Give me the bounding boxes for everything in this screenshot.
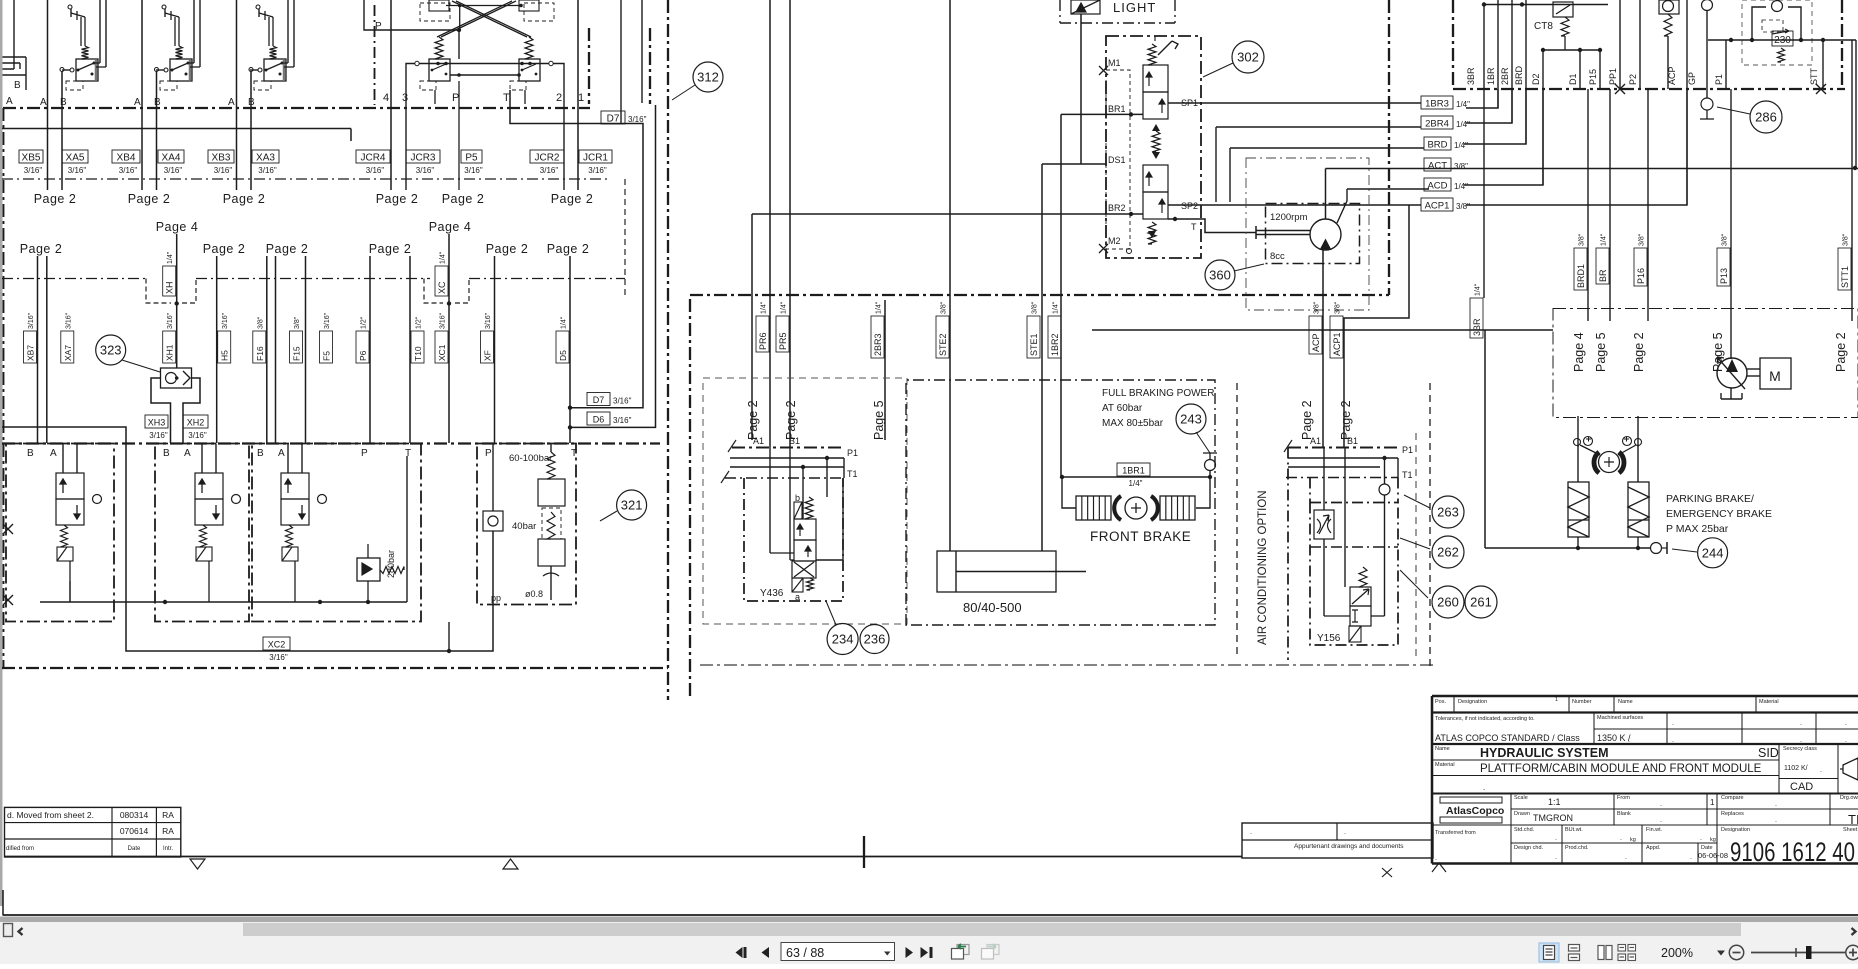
svg-text:Drg.owner.: Drg.owner. [1840,795,1858,801]
svg-text:Page 2: Page 2 [1300,400,1314,440]
svg-text:Page 2: Page 2 [1632,332,1646,372]
svg-text:080314: 080314 [120,810,149,820]
svg-text:1/4": 1/4" [876,301,883,314]
svg-text:Page 2: Page 2 [376,192,419,206]
svg-text:BUt.wt.: BUt.wt. [1565,827,1583,833]
svg-text:3/16": 3/16" [540,166,559,175]
svg-text:Tolerances, if not indicated,: Tolerances, if not indicated, according … [1435,716,1535,722]
svg-text:XF: XF [483,350,493,361]
svg-text:B: B [27,448,34,459]
svg-text:.: . [1344,829,1346,836]
svg-text:ATLAS COPCO STANDARD / Class: ATLAS COPCO STANDARD / Class [1435,733,1580,743]
svg-text:ACP1: ACP1 [1425,201,1450,212]
svg-text:3BR: 3BR [1466,67,1476,85]
svg-text:T1: T1 [1402,470,1413,480]
svg-text:1: 1 [1555,697,1558,703]
svg-text:D1: D1 [1568,73,1578,85]
svg-text:XH2: XH2 [187,418,205,428]
svg-text:Name: Name [1618,699,1633,705]
svg-text:P6: P6 [358,350,368,361]
svg-text:Material: Material [1759,699,1779,705]
svg-text:.: . [1845,737,1847,744]
svg-text:8cc: 8cc [1270,251,1285,262]
svg-text:P1: P1 [1714,74,1724,85]
svg-text:.: . [1620,835,1622,842]
svg-text:ACP1: ACP1 [1332,332,1342,356]
svg-text:262: 262 [1437,545,1459,560]
svg-text:1/4": 1/4" [561,316,568,329]
svg-text:ACT: ACT [1428,161,1447,172]
svg-text:B1: B1 [1347,436,1358,446]
svg-text:3/16": 3/16" [324,312,331,329]
svg-text:Secrecy class: Secrecy class [1783,746,1817,752]
svg-text:F16: F16 [255,346,265,361]
svg-text:3/8": 3/8" [1335,301,1342,314]
svg-text:1BR1: 1BR1 [1122,466,1145,476]
svg-text:Fin.wt.: Fin.wt. [1646,827,1663,833]
svg-text:A: A [134,97,141,108]
svg-text:Page 2: Page 2 [746,400,760,440]
svg-text:3/16": 3/16" [214,166,233,175]
svg-text:2BR3: 2BR3 [873,333,883,356]
svg-text:280bar: 280bar [386,550,396,578]
svg-text:360: 360 [1209,268,1231,283]
svg-text:40bar: 40bar [512,521,536,532]
svg-text:Page 5: Page 5 [1594,332,1608,372]
svg-text:Std.chd.: Std.chd. [1514,827,1535,833]
svg-text:3/16": 3/16" [222,312,229,329]
svg-text:Designation: Designation [1458,699,1487,705]
svg-text:3/16": 3/16" [65,312,72,329]
svg-text:CAD: CAD [1790,781,1813,793]
svg-text:XH: XH [165,281,175,294]
svg-text:1/4": 1/4" [1129,479,1143,488]
svg-text:263: 263 [1437,505,1459,520]
svg-text:60-100bar: 60-100bar [509,453,552,464]
svg-text:STT: STT [1809,67,1819,85]
svg-text:.: . [1435,855,1437,862]
svg-text:XB3: XB3 [212,153,231,164]
svg-text:Machined surfaces: Machined surfaces [1597,715,1643,721]
svg-text:BRD1: BRD1 [1576,264,1586,288]
svg-text:P15: P15 [1588,69,1598,85]
svg-text:1: 1 [1710,798,1715,807]
svg-text:Sheet: Sheet [1843,827,1858,833]
svg-text:P5: P5 [465,153,478,164]
svg-text:321: 321 [621,498,643,513]
svg-text:A1: A1 [1310,436,1321,446]
svg-text:302: 302 [1237,50,1259,65]
svg-text:PLATTFORM/CABIN MODULE AND FRO: PLATTFORM/CABIN MODULE AND FRONT MODULE [1480,763,1762,775]
svg-text:XB4: XB4 [117,153,136,164]
svg-text:A: A [6,96,13,107]
svg-text:FRONT BRAKE: FRONT BRAKE [1090,529,1191,544]
svg-text:Scale: Scale [1514,795,1528,801]
svg-text:A: A [184,448,191,459]
svg-text:P13: P13 [1719,268,1729,284]
svg-text:3/16": 3/16" [269,653,288,662]
svg-text:.: . [1555,854,1557,861]
svg-text:Transferred from: Transferred from [1435,830,1476,836]
svg-text:1/4": 1/4" [1053,301,1060,314]
svg-text:1/4": 1/4" [1454,141,1468,150]
svg-text:P: P [485,448,492,459]
svg-text:1: 1 [578,92,584,104]
svg-text:d. Moved from sheet 2.: d. Moved from sheet 2. [7,810,94,820]
svg-text:.: . [1800,720,1802,727]
svg-text:B: B [60,97,67,108]
svg-text:Number: Number [1572,699,1592,705]
svg-text:3/8": 3/8" [1579,233,1586,246]
svg-text:M1: M1 [1108,58,1121,68]
svg-text:ACD: ACD [1427,181,1447,192]
svg-text:1/4": 1/4" [781,301,788,314]
svg-text:1/4": 1/4" [1601,233,1608,246]
svg-text:B: B [154,97,161,108]
svg-text:1/2": 1/2" [416,316,423,329]
svg-text:1200rpm: 1200rpm [1270,212,1308,223]
svg-text:Y156: Y156 [1317,633,1341,644]
svg-text:3/8": 3/8" [941,301,948,314]
svg-text:Appd.: Appd. [1646,845,1661,851]
svg-text:.: . [1672,720,1674,727]
svg-text:Page 5: Page 5 [872,400,886,440]
svg-text:T1: T1 [847,469,858,479]
svg-text:A1: A1 [753,436,764,446]
svg-text:D2: D2 [1531,73,1541,85]
svg-text:3/16": 3/16" [188,431,207,440]
svg-text:RA: RA [162,826,174,836]
svg-text:3/16": 3/16" [28,312,35,329]
svg-text:3/16": 3/16" [464,166,483,175]
svg-text:63 / 88: 63 / 88 [786,946,824,960]
svg-text:M2: M2 [1108,236,1121,246]
svg-text:XA7: XA7 [63,345,73,361]
svg-text:PR6: PR6 [758,332,768,350]
svg-text:.: . [1555,835,1557,842]
svg-text:3/16": 3/16" [119,166,138,175]
svg-text:.: . [1775,801,1777,808]
svg-text:B: B [163,448,170,459]
svg-text:XB7: XB7 [26,345,36,361]
svg-text:1BR3: 1BR3 [1425,99,1449,110]
svg-text:Y436: Y436 [760,588,784,599]
svg-text:JCR3: JCR3 [410,153,435,164]
svg-text:1/2": 1/2" [361,316,368,329]
svg-text:Date: Date [128,846,141,852]
svg-text:3/16": 3/16" [258,166,277,175]
svg-text:286: 286 [1755,110,1777,125]
svg-text:P2: P2 [1628,74,1638,85]
svg-text:Drawn: Drawn [1514,811,1530,817]
svg-text:1/4": 1/4" [167,251,174,264]
svg-text:BRD: BRD [1427,140,1447,151]
svg-text:3/8": 3/8" [1843,233,1850,246]
svg-text:XH1: XH1 [165,344,175,361]
svg-text:XB5: XB5 [22,153,41,164]
svg-text:243: 243 [1180,412,1202,427]
svg-text:.: . [1800,737,1802,744]
svg-text:AtlasCopco: AtlasCopco [1446,805,1504,817]
svg-text:261: 261 [1470,595,1492,610]
svg-text:3/8": 3/8" [1722,233,1729,246]
svg-text:Prod.chd.: Prod.chd. [1565,845,1589,851]
svg-text:SID: SID [1758,746,1779,760]
svg-text:3/16": 3/16" [366,166,385,175]
svg-text:2BR: 2BR [1500,67,1510,85]
svg-text:P MAX 25bar: P MAX 25bar [1666,523,1729,535]
svg-text:XA3: XA3 [256,153,275,164]
svg-text:T: T [1191,222,1197,232]
svg-text:BRD: BRD [1514,65,1524,85]
svg-text:Page 4: Page 4 [1572,332,1586,372]
svg-text:XA4: XA4 [162,153,181,164]
svg-text:HYDRAULIC SYSTEM: HYDRAULIC SYSTEM [1480,746,1608,760]
svg-text:Page 2: Page 2 [442,192,485,206]
svg-text:A: A [278,448,285,459]
svg-text:1BR: 1BR [1486,67,1496,85]
svg-text:F15: F15 [292,346,302,361]
svg-text:Page 2: Page 2 [784,400,798,440]
svg-text:STE1: STE1 [1029,333,1039,356]
svg-text:ø0.8: ø0.8 [525,589,543,599]
svg-text:80/40-500: 80/40-500 [963,600,1022,615]
svg-text:TMGRON: TMGRON [1533,813,1573,823]
svg-text:Page 2: Page 2 [266,242,309,256]
svg-text:MAX 80±5bar: MAX 80±5bar [1102,418,1164,429]
svg-text:1102 K/: 1102 K/ [1784,765,1808,772]
svg-text:.: . [1625,854,1627,861]
svg-text:M: M [1769,368,1781,384]
svg-text:PARKING BRAKE/: PARKING BRAKE/ [1666,493,1754,505]
svg-text:A: A [50,448,57,459]
svg-text:Page 2: Page 2 [128,192,171,206]
svg-text:3/16": 3/16" [613,416,632,425]
svg-text:RA: RA [162,810,174,820]
svg-text:Design chd.: Design chd. [1514,845,1544,851]
svg-text:3/8": 3/8" [1454,162,1468,171]
svg-text:06-06-08: 06-06-08 [1698,851,1728,860]
svg-text:3/16": 3/16" [440,312,447,329]
svg-text:.: . [1250,829,1252,836]
svg-text:D6: D6 [593,415,605,425]
svg-text:LIGHT: LIGHT [1113,0,1156,15]
svg-text:PR5: PR5 [778,332,788,350]
svg-text:3/16": 3/16" [613,397,632,406]
svg-text:P: P [361,448,368,459]
svg-text:a: a [795,592,800,602]
svg-text:dified from: dified from [6,846,34,852]
svg-text:1BR2: 1BR2 [1050,333,1060,356]
svg-text:Designation: Designation [1721,827,1750,833]
svg-text:A: A [228,97,235,108]
svg-text:kg: kg [1630,837,1636,843]
svg-text:Page 2: Page 2 [486,242,529,256]
svg-text:D5: D5 [558,350,568,361]
svg-text:PP1: PP1 [1608,68,1618,85]
svg-text:Blank: Blank [1617,811,1631,817]
svg-text:JCR2: JCR2 [534,153,559,164]
svg-text:FULL BRAKING POWER: FULL BRAKING POWER [1102,388,1214,399]
svg-text:P1: P1 [1402,445,1413,455]
svg-text:BR: BR [1598,269,1608,282]
svg-text:P: P [452,92,459,104]
svg-text:XA5: XA5 [66,153,85,164]
svg-text:3/8": 3/8" [1456,202,1470,211]
svg-text:Replaces: Replaces [1721,811,1744,817]
svg-text:.: . [1483,783,1485,792]
svg-text:3/16": 3/16" [24,166,43,175]
svg-text:1/4": 1/4" [1454,182,1468,191]
svg-text:Page 2: Page 2 [223,192,266,206]
svg-text:244: 244 [1702,545,1724,560]
svg-text:070614: 070614 [120,826,149,836]
svg-text:260: 260 [1437,595,1459,610]
svg-text:2BR4: 2BR4 [1425,119,1449,130]
svg-text:Page 2: Page 2 [369,242,412,256]
svg-text:XC2: XC2 [268,640,286,650]
svg-text:XC: XC [437,281,447,294]
svg-text:B1: B1 [789,436,800,446]
svg-text:.: . [1845,720,1847,727]
svg-text:Page 2: Page 2 [203,242,246,256]
svg-text:Appurtenant drawings and docum: Appurtenant drawings and documents [1294,843,1404,850]
svg-text:Material: Material [1435,762,1455,768]
svg-text:T: T [503,92,510,104]
svg-text:B: B [257,448,264,459]
svg-text:H5: H5 [220,350,230,361]
svg-text:3/8": 3/8" [294,316,301,329]
svg-text:.: . [1820,767,1822,774]
svg-text:D7: D7 [593,395,605,405]
svg-text:Page 2: Page 2 [1339,400,1353,440]
svg-text:Page 2: Page 2 [20,242,63,256]
svg-text:Page 2: Page 2 [547,242,590,256]
svg-text:F5: F5 [322,351,332,361]
svg-text:Pos.: Pos. [1435,699,1446,705]
svg-text:.: . [1775,817,1777,824]
svg-text:D7: D7 [607,114,620,125]
svg-text:3/16": 3/16" [485,312,492,329]
svg-text:kg: kg [1710,837,1716,843]
svg-text:.: . [1628,737,1630,744]
svg-text:DS1: DS1 [1108,155,1126,165]
svg-text:BR1: BR1 [1108,104,1126,114]
svg-text:JCR4: JCR4 [360,153,385,164]
svg-text:A: A [40,97,47,108]
svg-text:P16: P16 [1636,268,1646,284]
svg-text:ACP: ACP [1311,333,1321,352]
svg-text:323: 323 [100,343,122,358]
svg-text:3: 3 [402,92,408,104]
svg-text:3/8": 3/8" [1314,301,1321,314]
svg-text:3/16": 3/16" [588,166,607,175]
svg-text:EMERGENCY BRAKE: EMERGENCY BRAKE [1666,508,1772,520]
svg-text:STE2: STE2 [938,333,948,356]
svg-text:1/4": 1/4" [1475,283,1482,296]
svg-text:3/16": 3/16" [628,115,647,124]
svg-text:200%: 200% [1661,946,1693,960]
svg-text:3/8": 3/8" [1639,233,1646,246]
svg-text:Page 4: Page 4 [156,220,199,234]
svg-text:T: T [405,448,411,459]
svg-text:.: . [1700,835,1702,842]
svg-text:1:1: 1:1 [1548,797,1561,807]
svg-text:P: P [375,21,382,32]
svg-text:From: From [1617,795,1630,801]
svg-text:B: B [14,80,21,91]
svg-text:1/4": 1/4" [440,251,447,264]
svg-text:236: 236 [864,632,886,647]
svg-text:234: 234 [832,632,854,647]
svg-text:SP2: SP2 [1181,201,1198,211]
svg-text:Name: Name [1435,746,1450,752]
svg-text:XH3: XH3 [148,418,166,428]
svg-text:Page 2: Page 2 [551,192,594,206]
svg-text:1350 K /: 1350 K / [1597,733,1631,743]
svg-text:.: . [1690,854,1692,861]
svg-text:3/16": 3/16" [416,166,435,175]
svg-text:.: . [1660,817,1662,824]
svg-text:P1: P1 [847,448,858,458]
svg-text:.: . [1672,737,1674,744]
svg-text:AIR CONDITIONING OPTION: AIR CONDITIONING OPTION [1257,490,1269,645]
svg-text:3/16": 3/16" [68,166,87,175]
svg-text:3/16": 3/16" [167,312,174,329]
svg-text:GP: GP [1687,72,1697,85]
svg-text:.: . [1660,801,1662,808]
svg-text:3/16": 3/16" [149,431,168,440]
svg-text:312: 312 [697,70,719,85]
svg-text:b: b [795,493,800,503]
svg-text:Page 4: Page 4 [429,220,472,234]
svg-text:AT 60bar: AT 60bar [1102,403,1143,414]
svg-text:4: 4 [383,92,389,104]
svg-text:3/16": 3/16" [164,166,183,175]
svg-text:BR2: BR2 [1108,203,1126,213]
svg-text:3BR: 3BR [1472,318,1482,336]
svg-text:STT1: STT1 [1840,266,1850,288]
svg-text:9106 1612 40: 9106 1612 40 [1730,837,1855,867]
svg-text:1/4": 1/4" [1456,120,1470,129]
svg-text:1/4": 1/4" [761,301,768,314]
svg-text:XC1: XC1 [437,344,447,361]
svg-text:Intr.: Intr. [163,846,173,852]
svg-text:pp: pp [491,593,501,603]
svg-text:Compare: Compare [1721,795,1744,801]
svg-text:Page 2: Page 2 [34,192,77,206]
svg-text:Page 2: Page 2 [1834,332,1848,372]
svg-text:T10: T10 [413,346,423,361]
svg-text:3/8": 3/8" [1032,301,1039,314]
svg-text:3/8": 3/8" [257,316,264,329]
svg-text:JCR1: JCR1 [583,153,608,164]
svg-text:2: 2 [556,92,562,104]
svg-text:CT8: CT8 [1534,21,1553,32]
